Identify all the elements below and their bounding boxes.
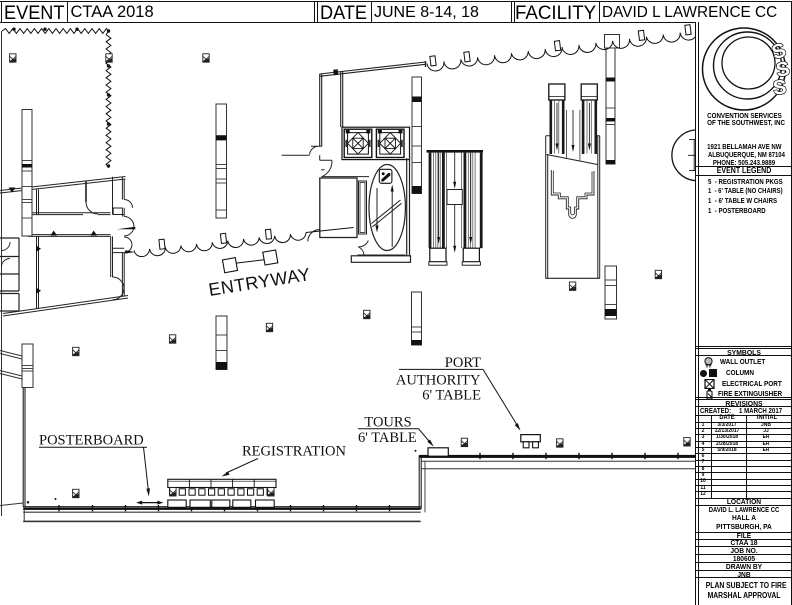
svg-text:S: S	[772, 76, 787, 99]
svg-text:AUTHORITY: AUTHORITY	[396, 373, 481, 389]
svg-text:PORT: PORT	[445, 355, 481, 371]
svg-text:REGISTRATION: REGISTRATION	[242, 444, 346, 460]
svg-text:ENTRYWAY: ENTRYWAY	[207, 264, 312, 300]
svg-text:6' TABLE: 6' TABLE	[422, 388, 481, 404]
svg-text:POSTERBOARD: POSTERBOARD	[39, 433, 144, 449]
svg-text:TOURS: TOURS	[364, 414, 411, 430]
svg-text:6' TABLE: 6' TABLE	[358, 430, 417, 446]
